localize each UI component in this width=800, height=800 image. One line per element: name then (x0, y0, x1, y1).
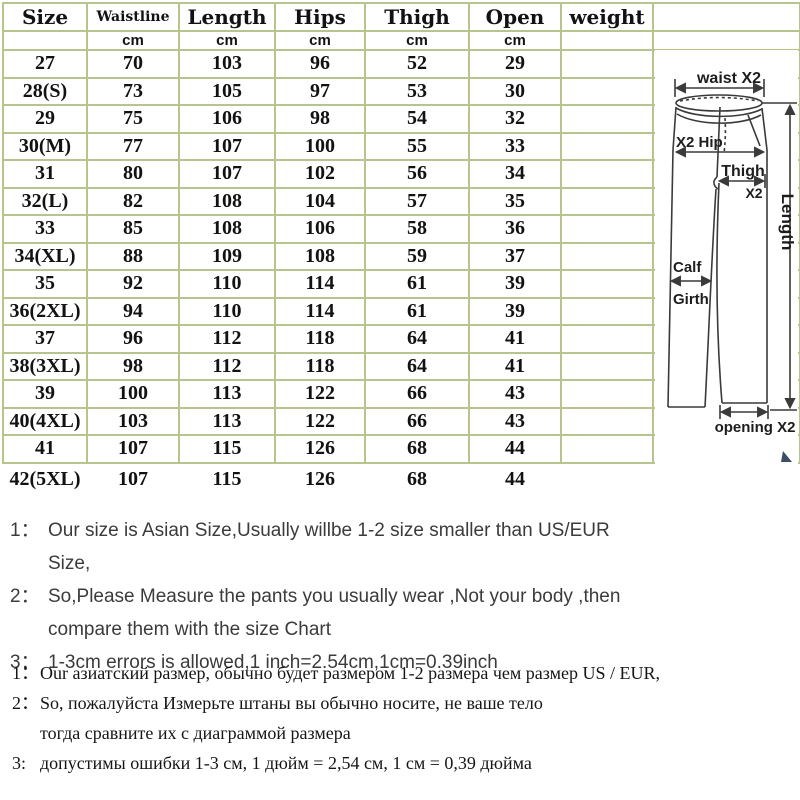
value-cell (561, 408, 653, 436)
note-line: Our size is Asian Size,Usually willbe 1-… (48, 514, 650, 580)
value-cell: 108 (179, 188, 275, 216)
value-cell: 113 (179, 408, 275, 436)
value-cell (561, 270, 653, 298)
value-cell: 66 (365, 408, 469, 436)
value-cell: 102 (275, 160, 365, 188)
unit-cell: cm (179, 31, 275, 50)
thigh-x2-label: X2 (745, 185, 762, 201)
value-cell (561, 463, 653, 495)
value-cell (561, 243, 653, 271)
value-cell: 92 (87, 270, 179, 298)
value-cell: 94 (87, 298, 179, 326)
value-cell: 53 (365, 78, 469, 106)
column-header-thigh: Thigh (365, 3, 469, 31)
value-cell: 52 (365, 50, 469, 78)
size-cell: 35 (3, 270, 87, 298)
value-cell: 107 (87, 435, 179, 463)
value-cell: 44 (469, 435, 561, 463)
value-cell: 29 (469, 50, 561, 78)
diagram-background (655, 50, 798, 464)
column-header-empty (653, 3, 800, 31)
value-cell: 110 (179, 298, 275, 326)
size-cell: 27 (3, 50, 87, 78)
value-cell: 70 (87, 50, 179, 78)
unit-cell (653, 31, 800, 50)
value-cell: 118 (275, 325, 365, 353)
table-unit-row: cmcmcmcmcm (3, 31, 800, 50)
value-cell: 54 (365, 105, 469, 133)
value-cell (561, 298, 653, 326)
size-cell: 31 (3, 160, 87, 188)
value-cell (561, 105, 653, 133)
value-cell: 43 (469, 408, 561, 436)
girth-label: Girth (673, 291, 709, 308)
unit-cell: cm (365, 31, 469, 50)
value-cell (561, 133, 653, 161)
value-cell: 30 (469, 78, 561, 106)
hip-label: X2 Hip (676, 134, 723, 151)
value-cell: 106 (275, 215, 365, 243)
size-cell: 37 (3, 325, 87, 353)
value-cell: 66 (365, 380, 469, 408)
size-cell: 39 (3, 380, 87, 408)
value-cell (561, 215, 653, 243)
value-cell: 33 (469, 133, 561, 161)
value-cell: 85 (87, 215, 179, 243)
value-cell: 112 (179, 325, 275, 353)
value-cell: 41 (469, 353, 561, 381)
value-cell: 112 (179, 353, 275, 381)
note-line: compare them with the size Chart (48, 613, 650, 646)
size-cell: 33 (3, 215, 87, 243)
value-cell: 126 (275, 435, 365, 463)
unit-cell (3, 31, 87, 50)
value-cell (561, 380, 653, 408)
value-cell: 104 (275, 188, 365, 216)
pants-measurement-diagram: waist X2 X2 Hip Thigh X2 Calf Girth open… (655, 50, 798, 464)
unit-cell: cm (87, 31, 179, 50)
value-cell: 82 (87, 188, 179, 216)
value-cell (561, 50, 653, 78)
value-cell: 107 (179, 133, 275, 161)
value-cell: 61 (365, 298, 469, 326)
note-number: 1： (10, 514, 48, 547)
value-cell: 98 (275, 105, 365, 133)
value-cell: 32 (469, 105, 561, 133)
note: 3:допустимы ошибки 1-3 см, 1 дюйм = 2,54… (12, 748, 732, 778)
note-number: 3: (12, 748, 40, 778)
value-cell: 96 (275, 50, 365, 78)
note: 1：Our азиатский размер, обычно будет раз… (12, 658, 732, 688)
value-cell: 110 (179, 270, 275, 298)
size-cell: 30(M) (3, 133, 87, 161)
value-cell: 114 (275, 270, 365, 298)
column-header-waistline: Waistline (87, 3, 179, 31)
value-cell: 58 (365, 215, 469, 243)
value-cell: 55 (365, 133, 469, 161)
value-cell: 41 (469, 325, 561, 353)
value-cell: 106 (179, 105, 275, 133)
value-cell (653, 463, 800, 495)
value-cell: 68 (365, 435, 469, 463)
table-header-row: SizeWaistlineLengthHipsThighOpenweight (3, 3, 800, 31)
value-cell: 122 (275, 408, 365, 436)
notes-en: 1：Our size is Asian Size,Usually willbe … (10, 514, 650, 679)
value-cell: 113 (179, 380, 275, 408)
note-line: допустимы ошибки 1-3 см, 1 дюйм = 2,54 с… (40, 748, 732, 778)
value-cell: 100 (275, 133, 365, 161)
value-cell: 108 (179, 215, 275, 243)
size-cell: 28(S) (3, 78, 87, 106)
value-cell: 80 (87, 160, 179, 188)
value-cell: 122 (275, 380, 365, 408)
size-cell: 41 (3, 435, 87, 463)
size-cell: 38(3XL) (3, 353, 87, 381)
value-cell (561, 188, 653, 216)
column-header-length: Length (179, 3, 275, 31)
notes-ru: 1：Our азиатский размер, обычно будет раз… (12, 658, 732, 778)
waist-label: waist X2 (696, 70, 761, 87)
size-chart-page: { "colors": { "grid": "#b7c48d", "table_… (0, 0, 800, 800)
length-label: Length (778, 194, 797, 251)
value-cell: 108 (275, 243, 365, 271)
value-cell: 115 (179, 463, 275, 495)
value-cell: 43 (469, 380, 561, 408)
value-cell (561, 435, 653, 463)
value-cell: 100 (87, 380, 179, 408)
value-cell: 77 (87, 133, 179, 161)
size-cell: 40(4XL) (3, 408, 87, 436)
value-cell: 34 (469, 160, 561, 188)
note-number: 2： (12, 688, 40, 718)
value-cell: 39 (469, 298, 561, 326)
value-cell (561, 78, 653, 106)
value-cell: 61 (365, 270, 469, 298)
column-header-open: Open (469, 3, 561, 31)
value-cell: 97 (275, 78, 365, 106)
value-cell: 57 (365, 188, 469, 216)
value-cell: 98 (87, 353, 179, 381)
calf-label: Calf (673, 259, 702, 276)
value-cell: 64 (365, 353, 469, 381)
value-cell: 44 (469, 463, 561, 495)
note: 2：So, пожалуйста Измерьте штаны вы обычн… (12, 688, 732, 748)
value-cell: 126 (275, 463, 365, 495)
value-cell: 39 (469, 270, 561, 298)
value-cell: 88 (87, 243, 179, 271)
value-cell: 109 (179, 243, 275, 271)
value-cell: 118 (275, 353, 365, 381)
size-cell: 32(L) (3, 188, 87, 216)
table-footer-row: 42(5XL)1071151266844 (3, 463, 800, 495)
value-cell: 115 (179, 435, 275, 463)
value-cell: 96 (87, 325, 179, 353)
value-cell: 105 (179, 78, 275, 106)
value-cell: 59 (365, 243, 469, 271)
unit-cell: cm (275, 31, 365, 50)
value-cell: 73 (87, 78, 179, 106)
note-line: тогда сравните их с диаграммой размера (40, 718, 732, 748)
column-header-weight: weight (561, 3, 653, 31)
value-cell: 64 (365, 325, 469, 353)
value-cell: 107 (179, 160, 275, 188)
column-header-hips: Hips (275, 3, 365, 31)
value-cell: 35 (469, 188, 561, 216)
note-number: 1： (12, 658, 40, 688)
note: 1：Our size is Asian Size,Usually willbe … (10, 514, 650, 580)
value-cell: 56 (365, 160, 469, 188)
unit-cell: cm (469, 31, 561, 50)
thigh-label: Thigh (721, 163, 765, 180)
note-number: 2： (10, 580, 48, 613)
value-cell: 37 (469, 243, 561, 271)
value-cell: 75 (87, 105, 179, 133)
unit-cell (561, 31, 653, 50)
column-header-size: Size (3, 3, 87, 31)
size-cell: 29 (3, 105, 87, 133)
opening-label: opening X2 (715, 419, 796, 436)
value-cell: 103 (179, 50, 275, 78)
note-line: Our азиатский размер, обычно будет разме… (40, 658, 732, 688)
size-cell: 34(XL) (3, 243, 87, 271)
size-cell: 42(5XL) (3, 463, 87, 495)
value-cell (561, 160, 653, 188)
note-line: So, пожалуйста Измерьте штаны вы обычно … (40, 688, 732, 718)
value-cell (561, 353, 653, 381)
value-cell: 68 (365, 463, 469, 495)
note: 2：So,Please Measure the pants you usuall… (10, 580, 650, 646)
value-cell: 107 (87, 463, 179, 495)
value-cell: 103 (87, 408, 179, 436)
size-cell: 36(2XL) (3, 298, 87, 326)
value-cell: 114 (275, 298, 365, 326)
value-cell (561, 325, 653, 353)
value-cell: 36 (469, 215, 561, 243)
note-line: So,Please Measure the pants you usually … (48, 580, 650, 613)
